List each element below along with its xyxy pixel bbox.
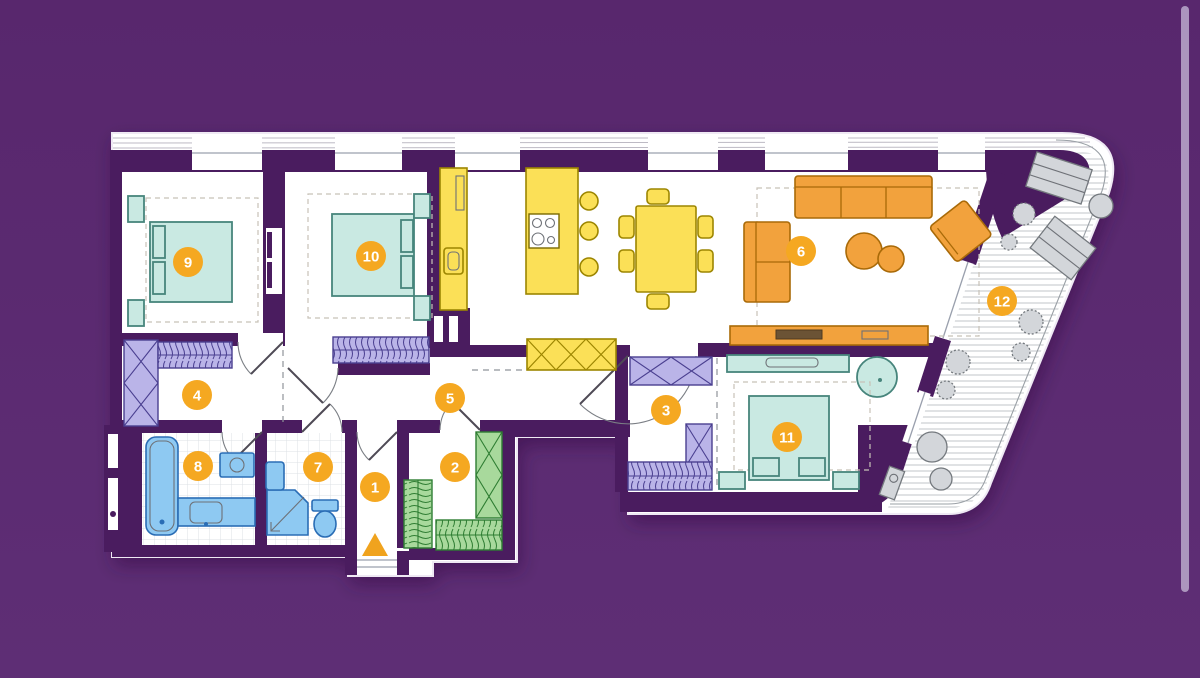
pillow [153, 262, 165, 294]
floor-plan-svg: 123456789101112 [0, 0, 1200, 678]
svg-text:1: 1 [371, 480, 379, 497]
svg-text:10: 10 [363, 249, 380, 266]
nightstand [128, 196, 144, 222]
wc-sink [266, 462, 284, 490]
scrollbar-thumb[interactable] [1181, 6, 1189, 592]
coffee-table [878, 246, 904, 272]
room-badge-6: 6 [786, 236, 816, 266]
toilet-tank [312, 500, 338, 511]
room-badge-4: 4 [182, 380, 212, 410]
round-table [857, 357, 897, 397]
screenshot-stage: 123456789101112 [0, 0, 1200, 678]
tv-sideboard [730, 326, 928, 345]
window [765, 136, 848, 170]
chair [619, 216, 634, 238]
pillow [401, 256, 413, 288]
room-badge-9: 9 [173, 247, 203, 277]
bar-stool [580, 258, 598, 276]
svg-text:7: 7 [314, 460, 322, 477]
coffee-table [846, 233, 882, 269]
plant [1019, 310, 1043, 334]
toilet [314, 511, 336, 537]
room-badge-1: 1 [360, 472, 390, 502]
svg-text:3: 3 [662, 403, 670, 420]
kitchen-counter [440, 168, 467, 310]
plant [937, 381, 955, 399]
wardrobe [630, 357, 712, 385]
svg-text:6: 6 [797, 244, 805, 261]
chair [647, 189, 669, 204]
wardrobe [124, 340, 158, 426]
room-badge-11: 11 [772, 422, 802, 452]
chair [698, 250, 713, 272]
washing-machine [220, 453, 254, 477]
pillow [753, 458, 779, 476]
bar-stool [580, 222, 598, 240]
terrace-table [1089, 194, 1113, 218]
svg-text:12: 12 [994, 294, 1011, 311]
room-badge-2: 2 [440, 452, 470, 482]
svg-text:8: 8 [194, 459, 202, 476]
window [455, 136, 520, 170]
dining-table [636, 206, 696, 292]
plant [1001, 234, 1017, 250]
chair [698, 216, 713, 238]
chair [647, 294, 669, 309]
plant [1012, 343, 1030, 361]
room-badge-12: 12 [987, 286, 1017, 316]
plant [1013, 203, 1035, 225]
nightstand [414, 296, 430, 320]
chair [619, 250, 634, 272]
room-badge-7: 7 [303, 452, 333, 482]
pillow [401, 220, 413, 252]
pillow [799, 458, 825, 476]
room-badge-5: 5 [435, 383, 465, 413]
window [648, 136, 718, 170]
bar-stool [580, 192, 598, 210]
svg-text:9: 9 [184, 255, 192, 272]
svg-text:11: 11 [779, 430, 795, 447]
svg-text:4: 4 [193, 388, 202, 405]
pillow [153, 226, 165, 258]
wardrobe [476, 432, 502, 518]
terrace-stool [930, 468, 952, 490]
svg-text:2: 2 [451, 460, 459, 477]
nightstand [414, 194, 430, 218]
window [192, 136, 262, 170]
window [335, 136, 402, 170]
nightstand [128, 300, 144, 326]
room-badge-8: 8 [183, 451, 213, 481]
nightstand [833, 472, 859, 489]
terrace-armchair [917, 432, 947, 462]
svg-text:5: 5 [446, 391, 454, 408]
nightstand [719, 472, 745, 489]
tv [776, 330, 822, 339]
room-badge-10: 10 [356, 241, 386, 271]
terrace-door-window [938, 136, 985, 170]
room-badge-3: 3 [651, 395, 681, 425]
plant [946, 350, 970, 374]
sofa [795, 176, 932, 218]
